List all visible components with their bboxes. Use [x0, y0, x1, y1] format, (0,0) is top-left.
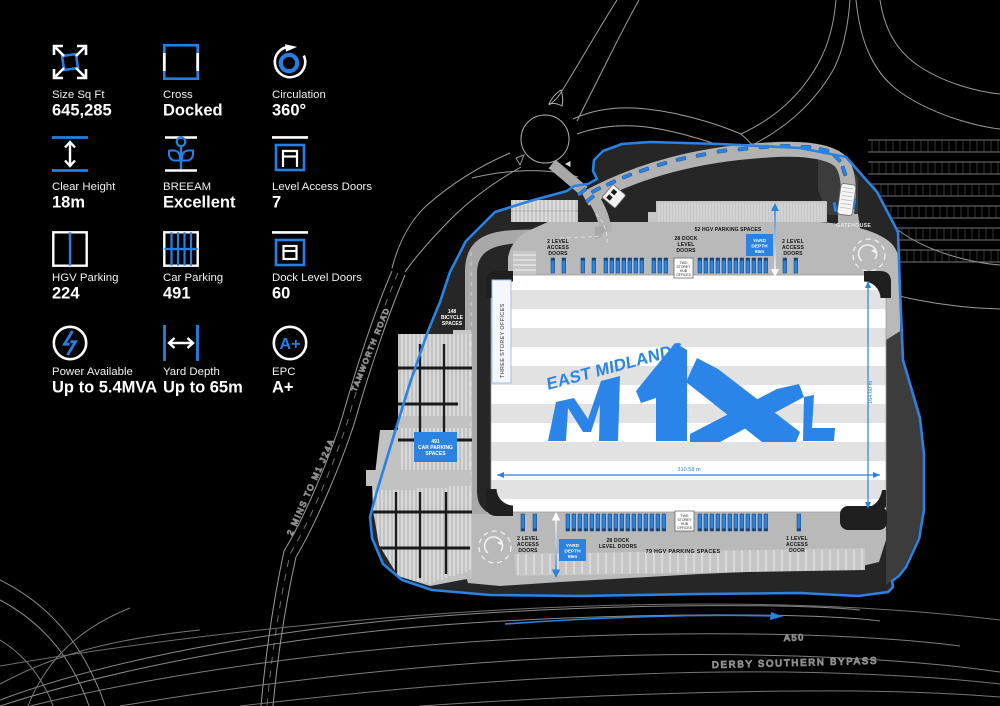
- svg-text:79 HGV PARKING SPACES: 79 HGV PARKING SPACES: [646, 549, 721, 555]
- svg-text:Clear Height: Clear Height: [52, 181, 116, 193]
- svg-text:OFFICES: OFFICES: [677, 526, 692, 530]
- svg-text:Size Sq Ft: Size Sq Ft: [52, 89, 105, 101]
- svg-text:YARD: YARD: [753, 238, 767, 244]
- svg-text:Up to 5.4MVA: Up to 5.4MVA: [52, 379, 157, 397]
- svg-text:310.58 m: 310.58 m: [677, 467, 701, 473]
- svg-text:DOORS: DOORS: [676, 248, 696, 254]
- svg-text:65m: 65m: [755, 249, 765, 255]
- svg-text:DOORS: DOORS: [518, 548, 538, 554]
- svg-text:52 HGV PARKING SPACES: 52 HGV PARKING SPACES: [695, 227, 762, 233]
- svg-text:Power Available: Power Available: [52, 366, 133, 378]
- svg-text:DEPTH: DEPTH: [564, 549, 581, 555]
- svg-text:DOOR: DOOR: [789, 548, 805, 554]
- svg-text:491: 491: [163, 285, 191, 303]
- svg-text:A+: A+: [272, 379, 294, 397]
- svg-text:A+: A+: [280, 336, 301, 353]
- svg-text:Circulation: Circulation: [272, 89, 326, 101]
- svg-text:GATEHOUSE: GATEHOUSE: [836, 223, 871, 229]
- svg-text:645,285: 645,285: [52, 102, 112, 120]
- svg-text:Excellent: Excellent: [163, 194, 236, 212]
- svg-text:DOORS: DOORS: [548, 251, 568, 257]
- svg-text:YARD: YARD: [566, 543, 580, 549]
- svg-text:Cross: Cross: [163, 89, 193, 101]
- svg-text:LEVEL DOORS: LEVEL DOORS: [599, 544, 637, 550]
- svg-text:55m: 55m: [568, 554, 578, 560]
- svg-text:164.60 m: 164.60 m: [868, 380, 874, 404]
- svg-text:SPACES: SPACES: [425, 451, 446, 457]
- svg-text:7: 7: [272, 194, 281, 212]
- svg-text:Docked: Docked: [163, 102, 223, 120]
- svg-text:DOORS: DOORS: [783, 251, 803, 257]
- svg-text:18m: 18m: [52, 194, 85, 212]
- svg-text:Dock Level Doors: Dock Level Doors: [272, 272, 362, 284]
- svg-text:60: 60: [272, 285, 290, 303]
- svg-text:EPC: EPC: [272, 366, 295, 378]
- svg-text:BREEAM: BREEAM: [163, 181, 211, 193]
- svg-text:A50: A50: [784, 632, 805, 643]
- svg-text:Car Parking: Car Parking: [163, 272, 223, 284]
- svg-text:224: 224: [52, 285, 80, 303]
- svg-text:SPACES: SPACES: [442, 321, 463, 327]
- svg-text:DEPTH: DEPTH: [751, 244, 768, 250]
- svg-text:HGV Parking: HGV Parking: [52, 272, 118, 284]
- svg-text:OFFICES: OFFICES: [676, 273, 691, 277]
- svg-text:Yard Depth: Yard Depth: [163, 366, 220, 378]
- svg-text:Level Access Doors: Level Access Doors: [272, 181, 372, 193]
- svg-text:THREE STOREY OFFICES: THREE STOREY OFFICES: [500, 303, 506, 378]
- svg-text:360°: 360°: [272, 102, 306, 120]
- svg-text:Up to 65m: Up to 65m: [163, 379, 243, 397]
